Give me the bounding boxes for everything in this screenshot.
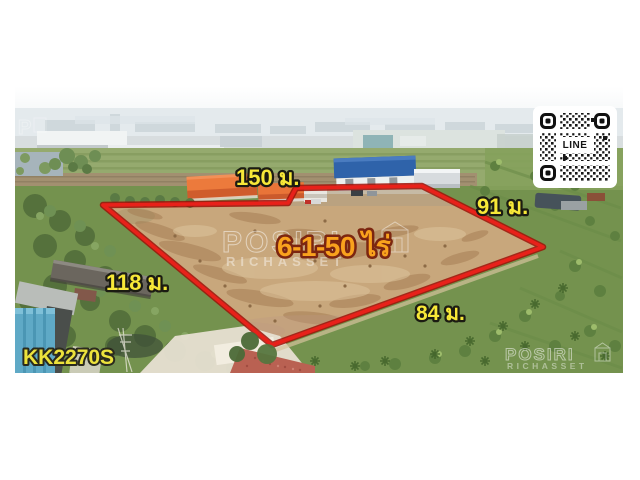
line-qr-label: LINE bbox=[563, 140, 588, 151]
aerial-photo bbox=[15, 36, 623, 373]
aerial-photo-scene bbox=[15, 36, 623, 373]
line-qr-code: LINE bbox=[533, 106, 617, 188]
blue-roof-house bbox=[15, 308, 55, 373]
orange-roof-building bbox=[186, 173, 257, 202]
land-listing-image: LINE P POSIRI RICHASSET POSIRI RICHASSET bbox=[0, 0, 640, 480]
